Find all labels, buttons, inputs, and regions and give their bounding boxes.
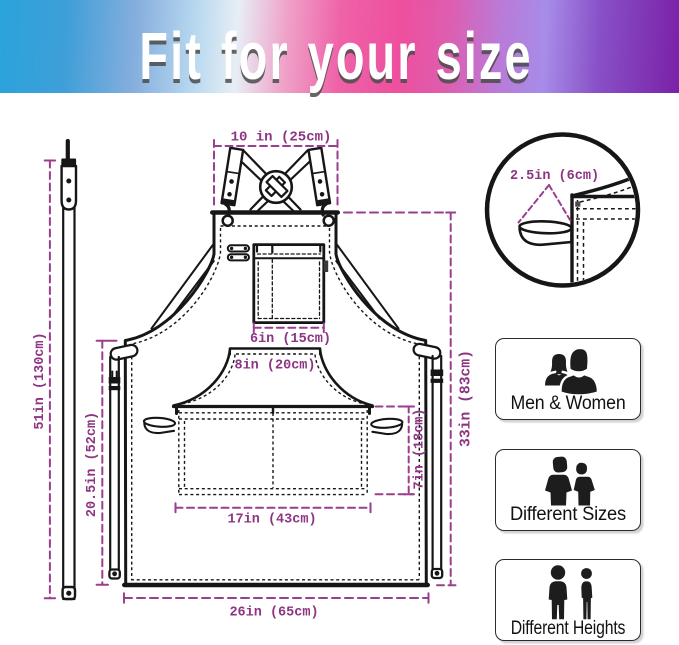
svg-text:6in (15cm): 6in (15cm) <box>250 332 331 347</box>
svg-text:51in (130cm): 51in (130cm) <box>33 332 48 429</box>
svg-text:26in (65cm): 26in (65cm) <box>229 606 318 621</box>
svg-text:20.5in (52cm): 20.5in (52cm) <box>85 412 100 517</box>
svg-text:33in (83cm): 33in (83cm) <box>459 350 475 447</box>
svg-text:8in (20cm): 8in (20cm) <box>234 359 315 374</box>
svg-text:7in (18cm): 7in (18cm) <box>413 408 428 489</box>
svg-text:17in (43cm): 17in (43cm) <box>227 513 316 528</box>
svg-text:10 in (25cm): 10 in (25cm) <box>231 130 332 146</box>
svg-text:2.5in (6cm): 2.5in (6cm) <box>510 169 599 184</box>
